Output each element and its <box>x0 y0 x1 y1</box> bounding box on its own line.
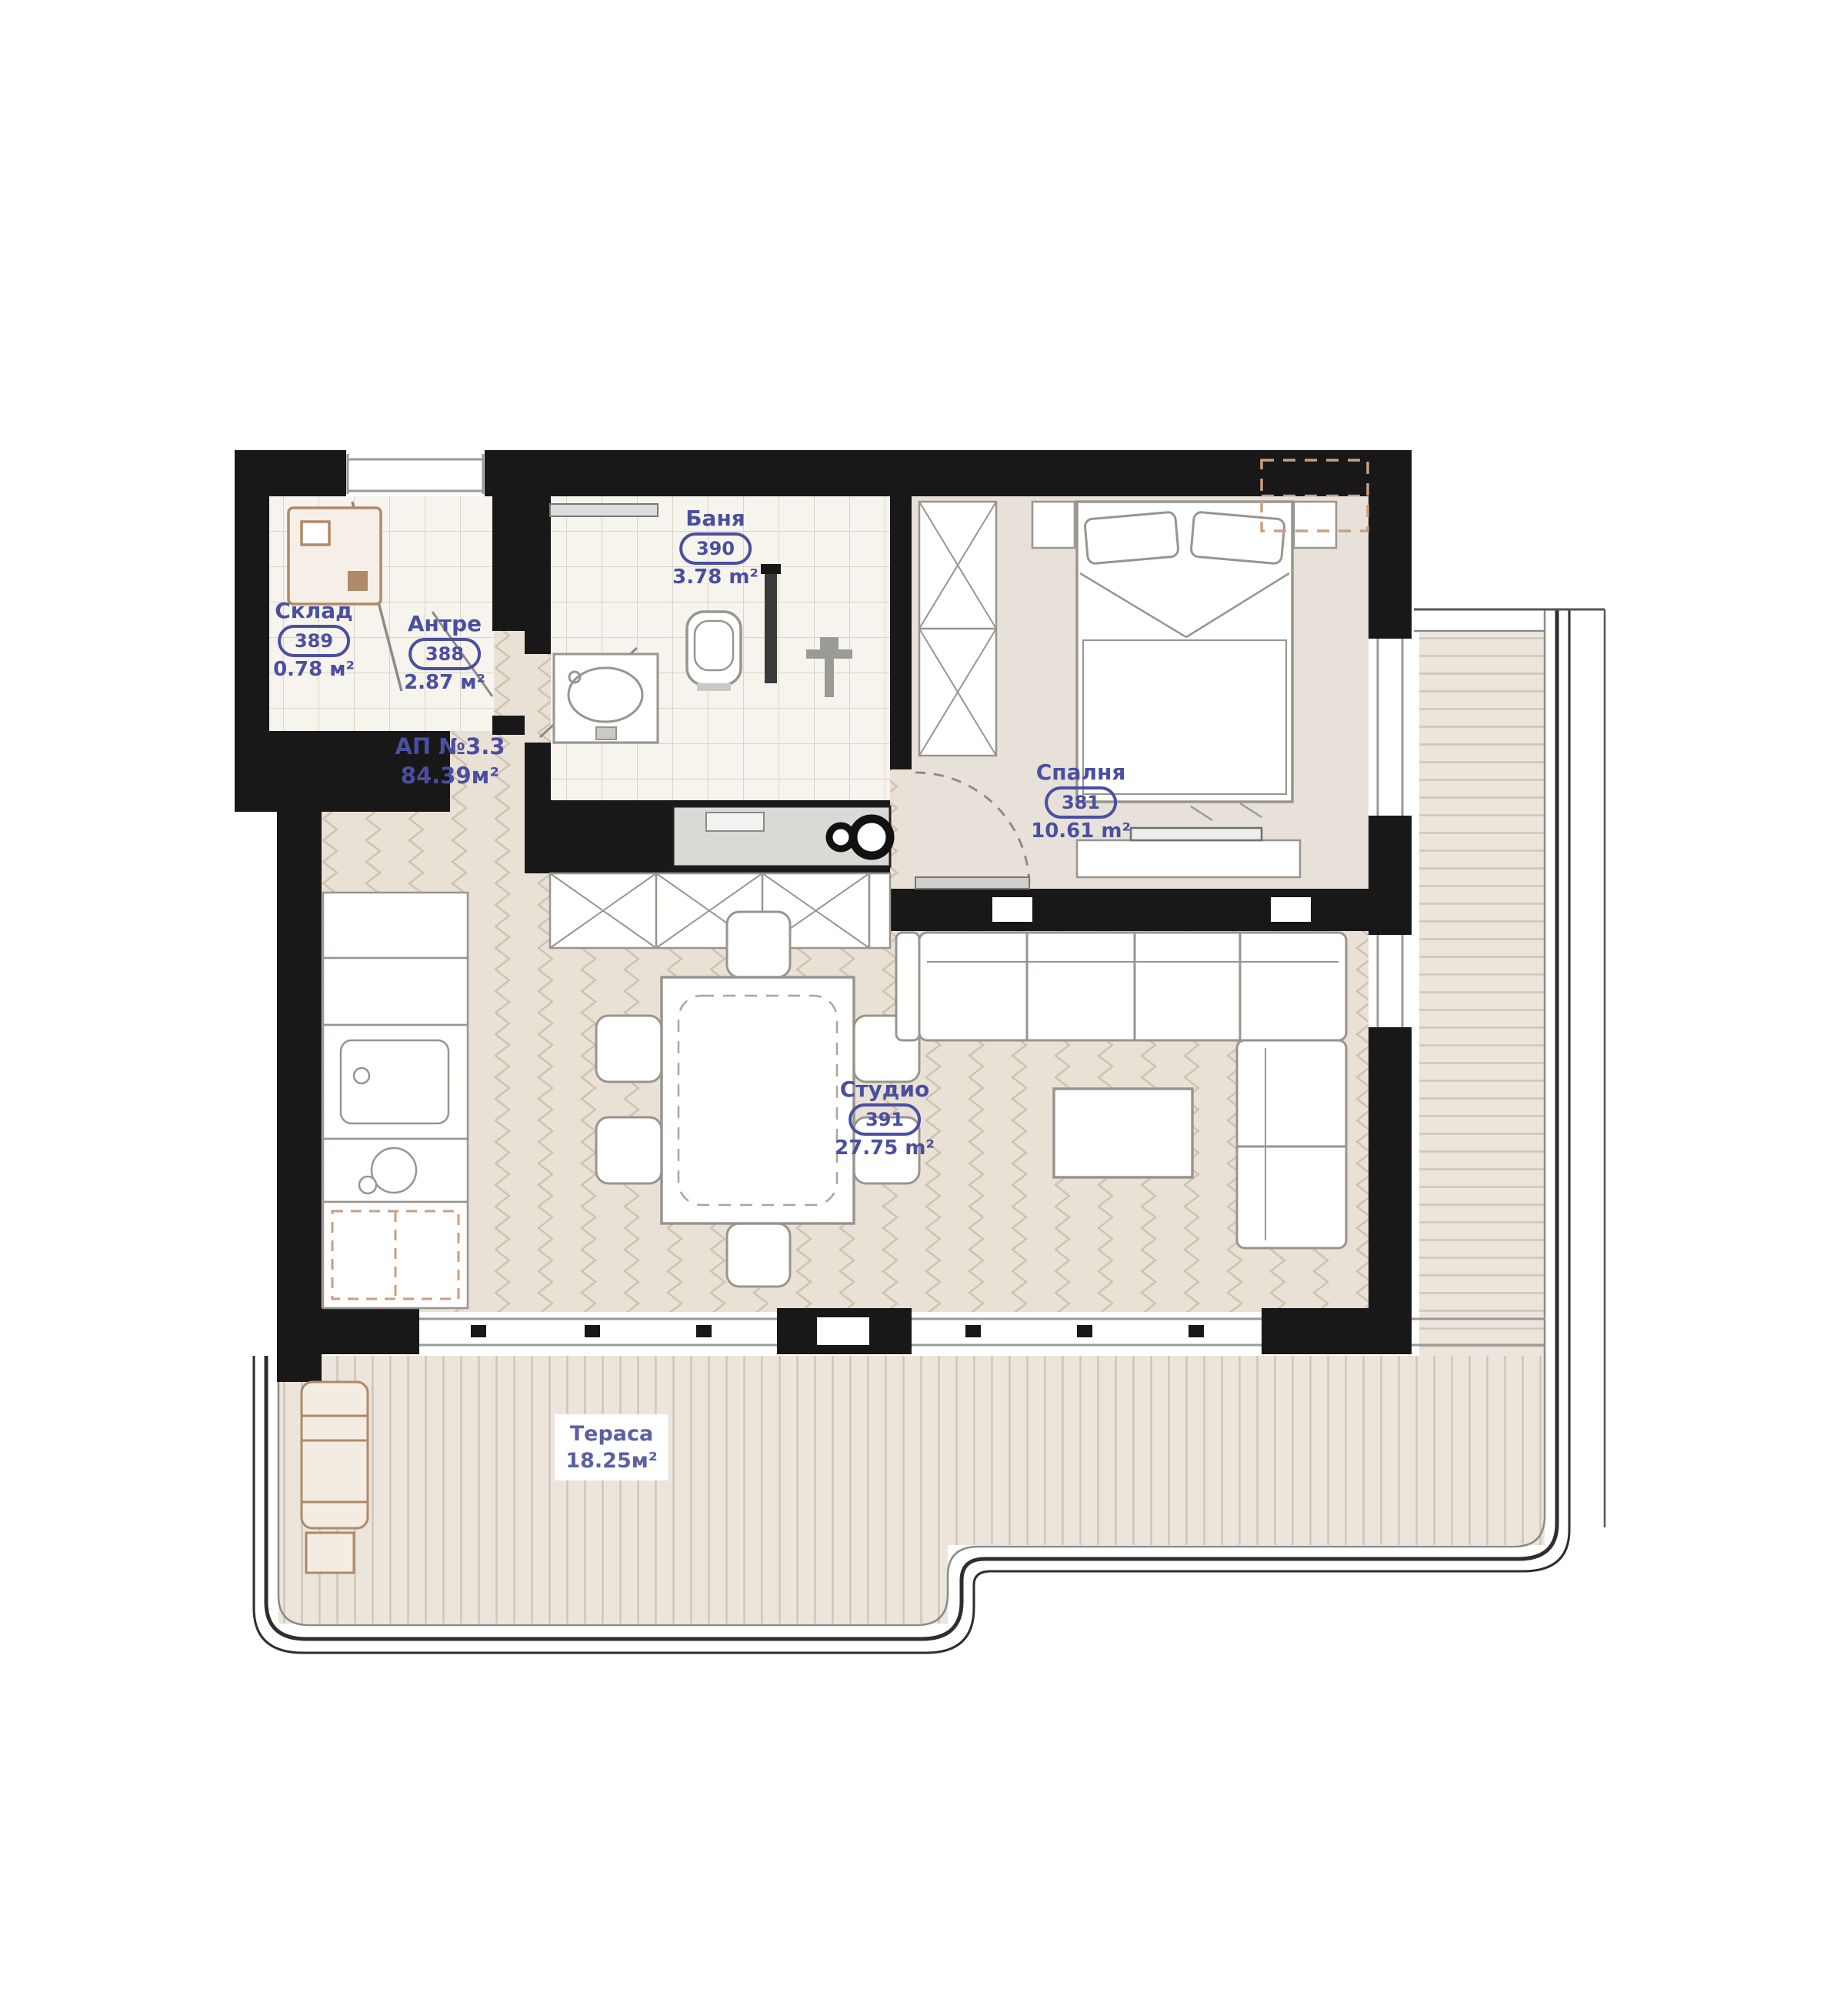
wardrobe-icon <box>919 502 996 756</box>
washing-machine-icon <box>288 508 381 604</box>
room-name: Студио <box>835 1077 935 1102</box>
terrace-deck-right <box>948 1356 1545 1545</box>
terrace-label: Тераса 18.25м² <box>555 1414 668 1480</box>
room-label-studio: Студио 391 27.75 m² <box>835 1077 935 1160</box>
floorplan-canvas: Склад 389 0.78 м² Антре 388 2.87 м² Баня… <box>0 0 1827 2016</box>
nightstand-icon <box>1294 502 1336 548</box>
room-area: 2.87 м² <box>404 672 485 695</box>
sink-icon <box>554 654 658 743</box>
room-label-bedroom: Спалня 381 10.61 m² <box>1031 760 1131 843</box>
closet-row <box>550 873 890 948</box>
kitchen <box>323 893 468 1308</box>
counter-niche <box>673 806 890 866</box>
kitchen-cabinet-icon <box>323 958 468 1025</box>
room-area: 27.75 m² <box>835 1137 935 1160</box>
kitchen-cabinet-icon <box>323 893 468 958</box>
room-label-entry: Антре 388 2.87 м² <box>404 612 485 695</box>
room-number-badge: 390 <box>672 532 758 565</box>
counter-bowl-large-icon <box>853 819 890 856</box>
room-label-storage: Склад 389 0.78 м² <box>273 599 355 682</box>
terrace-area: 18.25м² <box>565 1447 657 1474</box>
apartment-name: АП №3.3 <box>395 733 505 762</box>
chair-icon <box>596 1016 662 1082</box>
stove-icon <box>323 1139 468 1202</box>
apartment-area: 84.39м² <box>395 762 505 791</box>
terrace-name: Тераса <box>565 1420 657 1447</box>
shower-screen-icon <box>550 504 658 516</box>
chair-icon <box>727 1223 790 1287</box>
room-name: Спалня <box>1031 760 1131 785</box>
chair-icon <box>596 1117 662 1183</box>
room-area: 0.78 м² <box>273 659 355 682</box>
room-number-badge: 388 <box>404 638 485 670</box>
room-name: Антре <box>404 612 485 636</box>
terrace-deck-left <box>278 1356 948 1624</box>
kitchen-sink-icon <box>323 1025 468 1139</box>
bed-icon <box>1077 502 1292 802</box>
coffee-table-icon <box>1054 1089 1192 1177</box>
dining-table-icon <box>662 977 854 1223</box>
room-label-bathroom: Баня 390 3.78 m² <box>672 506 758 589</box>
floorplan-drawing <box>0 0 1827 2016</box>
room-number-badge: 381 <box>1031 786 1131 819</box>
toilet-icon <box>687 612 741 691</box>
apartment-label: АП №3.3 84.39м² <box>395 733 505 790</box>
room-area: 10.61 m² <box>1031 820 1131 843</box>
chair-icon <box>727 912 790 977</box>
room-area: 3.78 m² <box>672 566 758 589</box>
nightstand-icon <box>1032 502 1075 548</box>
side-balcony-deck <box>1419 633 1545 1356</box>
room-name: Баня <box>672 506 758 531</box>
room-name: Склад <box>273 599 355 623</box>
room-number-badge: 389 <box>273 625 355 657</box>
dishwasher-icon <box>323 1202 468 1308</box>
bedroom-door-leaf <box>915 877 1029 889</box>
room-number-badge: 391 <box>835 1103 935 1136</box>
storage-room <box>288 508 381 604</box>
